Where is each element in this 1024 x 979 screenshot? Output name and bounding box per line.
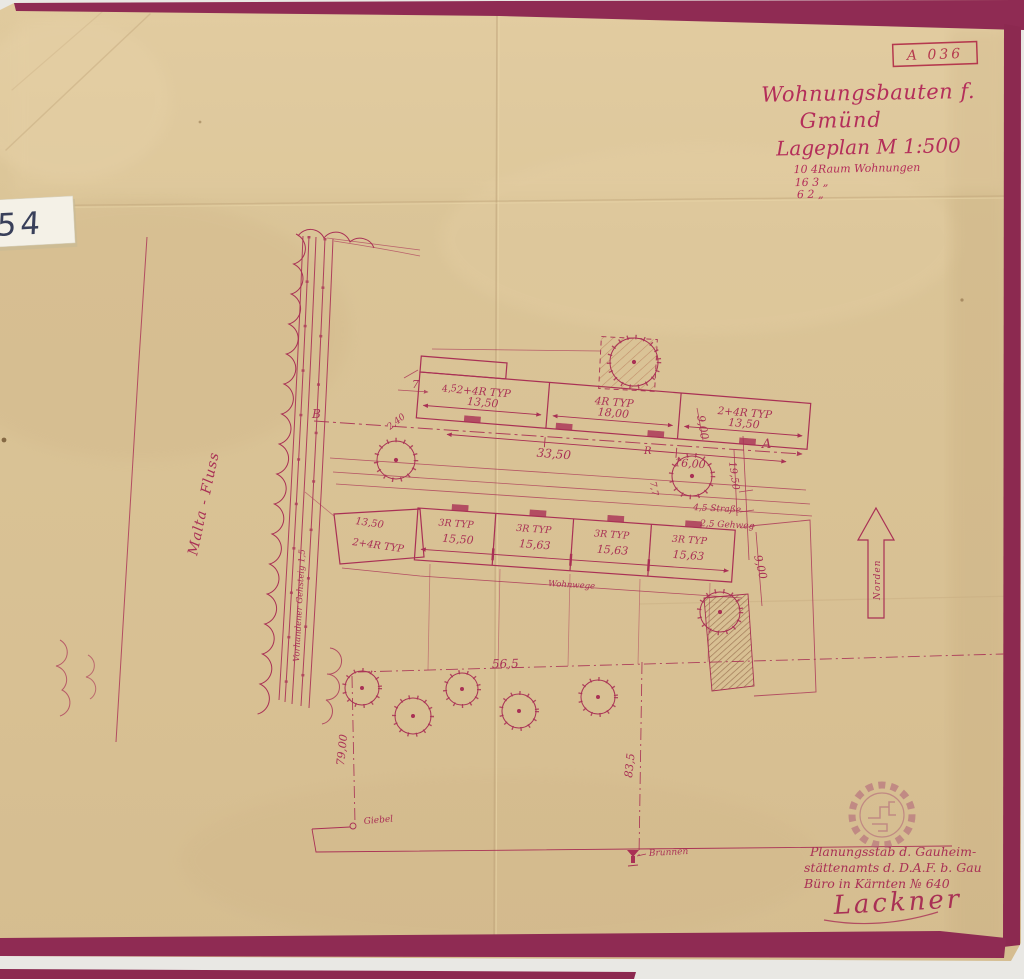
lower-unit2-dim: 15,50 <box>442 532 474 547</box>
lower-unit4-dim: 15,63 <box>596 543 628 558</box>
well-label: Brunnen <box>648 847 689 859</box>
archive-number: 554 <box>0 205 45 245</box>
scanned-site-plan: 2+4R TYP 13,50 4R TYP 18,00 2+4R TYP 13,… <box>0 0 1024 979</box>
dim-plot-right: 83,5 <box>622 753 637 779</box>
footer-line2: stättenamts d. D.A.F. b. Gau <box>804 860 982 875</box>
upper-total-dim: 33,50 <box>536 446 572 463</box>
section-letter-a: A <box>761 437 771 452</box>
title-line3: Lageplan M 1:500 <box>775 133 961 160</box>
title-line1: Wohnungsbauten f. <box>761 79 975 107</box>
lower-unit5-dim: 15,63 <box>672 548 704 563</box>
dim-tree: 16,00 <box>674 456 706 471</box>
archive-label: 554 <box>0 196 77 252</box>
dim-plot-width: 56,5 <box>492 657 519 671</box>
stamp-code: A 036 <box>905 46 964 64</box>
dim-45: 4,5 <box>441 383 458 395</box>
section-letter-b: B <box>311 407 321 421</box>
tape-right <box>1003 24 1021 947</box>
dim-7: 7 <box>412 378 419 391</box>
lower-unit3-dim: 15,63 <box>519 537 551 552</box>
upper-unit3-dim: 13,50 <box>728 416 760 431</box>
title-line2: Gmünd <box>799 108 882 133</box>
upper-unit2-dim: 18,00 <box>597 405 629 420</box>
title-stat3: 6 2 „ <box>797 188 824 201</box>
upper-unit1-dim: 13,50 <box>467 395 499 410</box>
title-stat1: 10 4Raum Wohnungen <box>793 161 920 176</box>
north-label: Norden <box>873 560 883 601</box>
parking-letter: R <box>643 446 652 457</box>
hatched-strip <box>704 594 754 691</box>
garden-plot-square <box>599 337 658 392</box>
footer-line1: Planungsstab d. Gauheim- <box>809 844 976 859</box>
